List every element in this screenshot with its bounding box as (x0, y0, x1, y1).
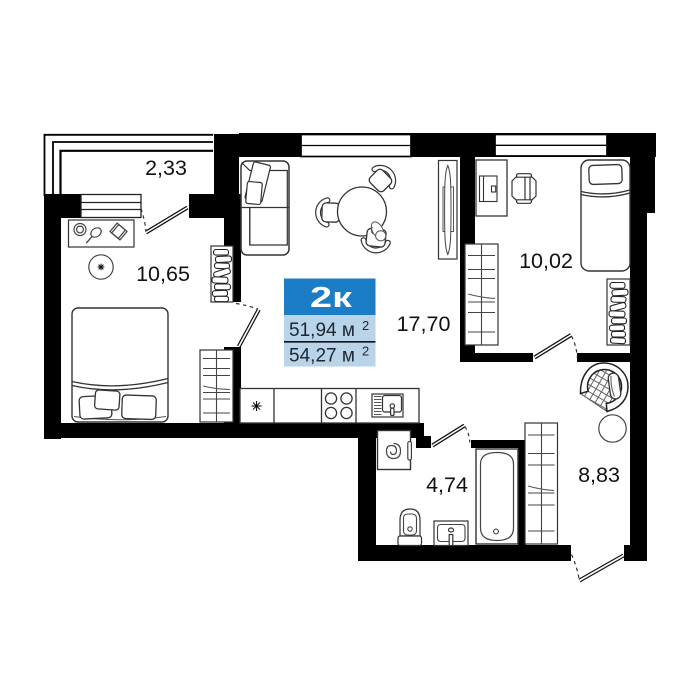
svg-text:4,74: 4,74 (426, 473, 468, 497)
svg-text:17,70: 17,70 (397, 312, 451, 336)
svg-text:54,27 м: 54,27 м (289, 346, 355, 367)
svg-text:2: 2 (362, 344, 369, 359)
svg-text:10,65: 10,65 (136, 262, 190, 286)
svg-text:8,83: 8,83 (578, 463, 620, 487)
svg-text:2к: 2к (310, 282, 353, 314)
svg-text:10,02: 10,02 (519, 249, 573, 273)
svg-text:2: 2 (362, 318, 369, 333)
svg-text:2,33: 2,33 (145, 156, 187, 180)
svg-text:51,94 м: 51,94 м (289, 320, 355, 341)
